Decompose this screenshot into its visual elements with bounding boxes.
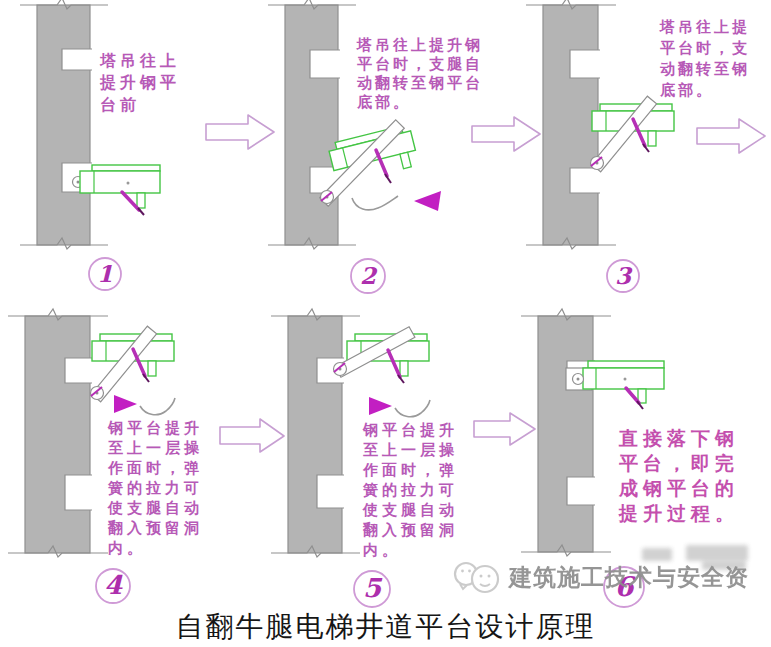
support-leg-foot	[137, 193, 145, 208]
step-note-6: 直接落下钢 平台，即完 成钢平台的 提升过程。	[619, 426, 739, 526]
step-note-3: 塔吊往上提 平台时，支 动翻转至钢 底部。	[660, 17, 750, 101]
diagram-canvas: 塔吊往上 提升钢平 台前 塔吊往上提升钢 平台时，支腿自 动翻转至钢平台 底部。…	[0, 0, 771, 647]
rotation-direction-icon	[114, 395, 175, 415]
next-step-arrow-icon	[220, 419, 284, 452]
rotation-direction-icon	[369, 397, 430, 417]
image-caption: 自翻牛腿电梯井道平台设计原理	[0, 608, 771, 646]
spring-leg	[626, 388, 639, 403]
reserved-hole	[65, 358, 92, 383]
step-note-4: 钢平台提升 至上一层操 作面时，弹 簧的拉力可 使支腿自动 翻入预留洞 内。	[108, 418, 203, 558]
next-step-arrow-icon	[206, 115, 274, 149]
watermark: 建筑施工技术与安全资	[452, 554, 749, 600]
shaft-wall-2	[268, 0, 356, 249]
reserved-hole	[62, 49, 92, 70]
watermark-text: 建筑施工技术与安全资	[509, 562, 749, 593]
step-badge-2: 2	[360, 262, 376, 289]
reserved-hole	[570, 168, 600, 193]
steel-platform-3	[591, 96, 675, 172]
next-step-arrow-icon	[472, 117, 540, 151]
shaft-wall-1	[20, 0, 108, 249]
shaft-wall-6	[521, 309, 611, 556]
next-step-arrow-icon	[697, 119, 765, 153]
step-note-1: 塔吊往上 提升钢平 台前	[100, 50, 180, 116]
reserved-hole	[570, 50, 600, 78]
step-note-5: 钢平台提升 至上一层操 作面时，弹 簧的拉力可 使支腿自动 翻入预留洞 内。	[363, 420, 458, 560]
reserved-hole	[65, 475, 92, 510]
rotation-direction-icon	[352, 191, 441, 211]
steel-platform-5	[334, 327, 430, 383]
step-note-2: 塔吊往上提升钢 平台时，支腿自 动翻转至钢平台 底部。	[357, 36, 483, 112]
reserved-hole	[567, 477, 595, 505]
chat-bubbles-logo-icon	[452, 557, 502, 597]
reserved-hole	[310, 50, 340, 78]
step-badge-5: 5	[363, 573, 381, 603]
next-step-arrow-icon	[474, 413, 535, 445]
step-badge-3: 3	[615, 262, 631, 289]
break-line	[521, 309, 611, 320]
step-badge-1: 1	[97, 260, 113, 287]
step-badge-4: 4	[104, 570, 122, 600]
steel-platform-4	[91, 326, 175, 402]
reserved-hole	[317, 475, 344, 508]
